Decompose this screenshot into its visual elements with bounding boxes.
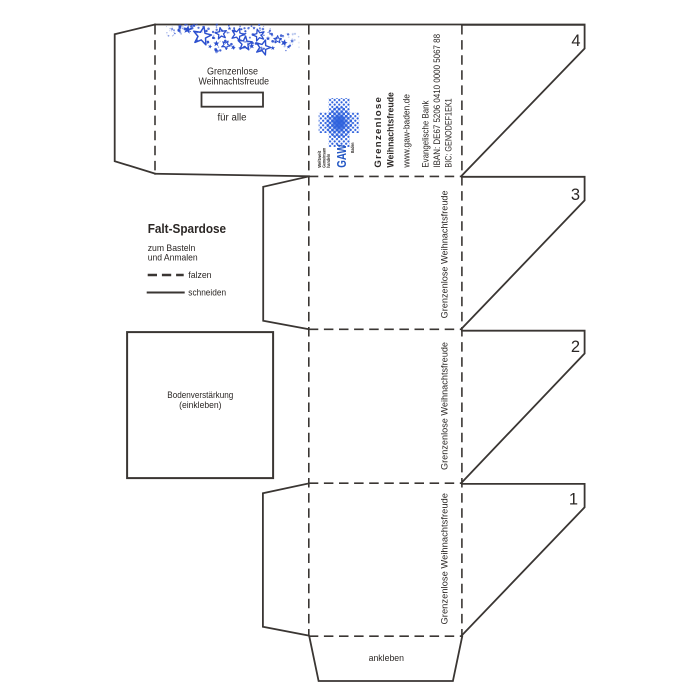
svg-text:für alle: für alle: [218, 113, 247, 124]
svg-text:IBAN: DE67 5206 0410 0000 5067: IBAN: DE67 5206 0410 0000 5067 88: [432, 34, 442, 168]
svg-text:und Anmalen: und Anmalen: [148, 253, 198, 263]
svg-text:falzen: falzen: [188, 270, 211, 280]
svg-text:Grenzenlose Weihnachtsfreude: Grenzenlose Weihnachtsfreude: [440, 493, 450, 625]
svg-text:BIC: GENODEF1EK1: BIC: GENODEF1EK1: [443, 98, 453, 167]
svg-text:www.gaw-baden.de: www.gaw-baden.de: [401, 94, 411, 169]
svg-text:Grenzenlose: Grenzenlose: [373, 97, 384, 168]
svg-text:Evangelische Bank: Evangelische Bank: [421, 100, 431, 168]
svg-text:3: 3: [571, 186, 580, 204]
svg-text:zum Basteln: zum Basteln: [148, 243, 196, 253]
svg-text:Grenzenlose Weihnachtsfreude: Grenzenlose Weihnachtsfreude: [440, 190, 450, 318]
svg-text:Falt-Spardose: Falt-Spardose: [148, 222, 226, 236]
svg-text:1: 1: [569, 491, 578, 509]
svg-text:2: 2: [571, 338, 580, 356]
svg-text:Grenzenlose Weihnachtsfreude: Grenzenlose Weihnachtsfreude: [440, 342, 450, 470]
svg-text:handeln: handeln: [326, 153, 331, 167]
svg-text:schneiden: schneiden: [188, 288, 226, 298]
svg-text:ankleben: ankleben: [369, 653, 404, 664]
svg-text:Weihnachtsfreude: Weihnachtsfreude: [385, 92, 396, 168]
svg-text:4: 4: [571, 32, 580, 50]
svg-text:Weihnachtsfreude: Weihnachtsfreude: [199, 77, 270, 88]
svg-text:Baden: Baden: [350, 142, 356, 153]
svg-text:GAW: GAW: [335, 144, 349, 168]
svg-text:(einkleben): (einkleben): [179, 400, 221, 411]
